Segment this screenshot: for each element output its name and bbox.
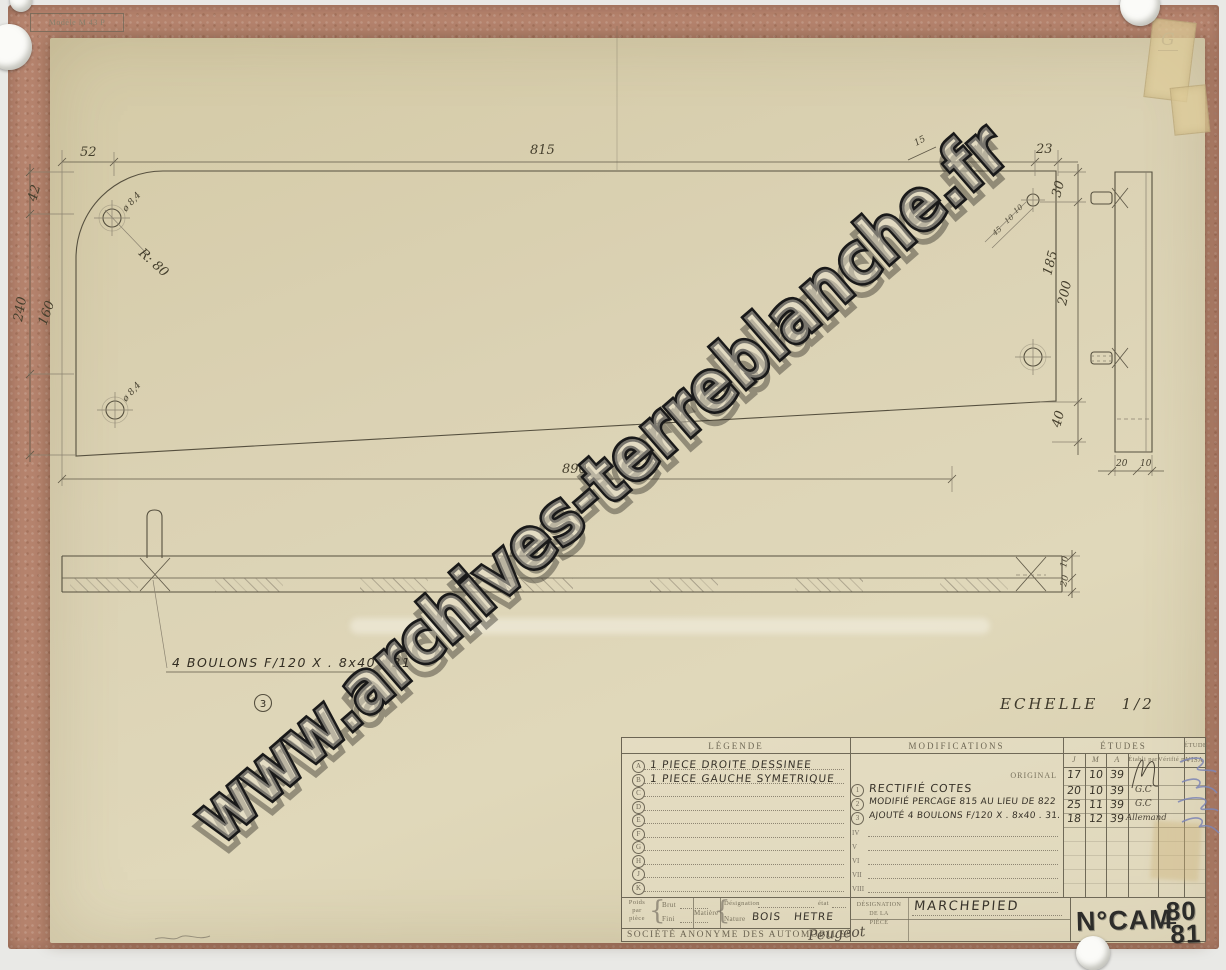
legende-letter: A xyxy=(632,760,645,773)
dim-30: 30 xyxy=(1049,179,1068,199)
col-j: J xyxy=(1063,755,1085,764)
dim-185: 185 xyxy=(1040,249,1061,277)
section-view xyxy=(62,510,1080,712)
date-j: 18 xyxy=(1062,812,1085,825)
legende-letter: C xyxy=(632,787,645,800)
date-a: 39 xyxy=(1105,784,1128,797)
dim-40: 40 xyxy=(1049,409,1068,430)
callout-3: 3 xyxy=(260,699,266,710)
dim-side-10: 10 xyxy=(1140,459,1152,469)
date-j: 20 xyxy=(1062,784,1085,797)
date-m: 12 xyxy=(1084,812,1107,825)
legende-letter: F xyxy=(632,828,645,841)
legende-letter: E xyxy=(632,814,645,827)
etudes-header: ÉTUDES xyxy=(1063,741,1184,751)
col-verifie: Vérifié par xyxy=(1158,756,1184,763)
mod-empty-row: VIII xyxy=(852,885,864,893)
dim-200: 200 xyxy=(1055,279,1075,307)
mod-empty-row: VI xyxy=(852,857,859,865)
mod-empty-row: VII xyxy=(852,871,862,879)
etabli-sig: G.C xyxy=(1135,799,1152,809)
plan-view xyxy=(76,171,1056,456)
col-m: M xyxy=(1085,755,1106,764)
mod-num: 2 xyxy=(851,798,864,811)
num-label: N°CAM xyxy=(1076,904,1174,938)
dim-815: 815 xyxy=(530,143,555,158)
poids-label: pièce xyxy=(624,915,650,922)
legende-text: 1 PIECE GAUCHE SYMETRIQUE xyxy=(649,773,835,785)
designation-sub-label: Désignation xyxy=(724,900,760,907)
date-m: 10 xyxy=(1084,768,1107,781)
date-m: 10 xyxy=(1084,784,1107,797)
matiere-value: BOIS xyxy=(751,911,781,923)
dim-52: 52 xyxy=(80,145,97,160)
brut-label: Brut xyxy=(662,901,676,909)
designation-label: DÉSIGNATION xyxy=(852,902,906,908)
legende-letter: K xyxy=(632,882,645,895)
legende-header: LÉGENDE xyxy=(622,741,850,751)
dim-side-20: 20 xyxy=(1115,459,1128,469)
date-m: 11 xyxy=(1084,798,1107,811)
matiere-value: HETRE xyxy=(793,911,834,923)
brand-logo: Peugeot xyxy=(808,924,866,944)
legende-letter: H xyxy=(632,855,645,868)
etabli-sig: G.C xyxy=(1135,785,1152,795)
paper-stain xyxy=(1150,820,1202,881)
mounting-pin xyxy=(1076,936,1110,970)
bolts-note: 4 BOULONS F/120 X . 8x40 . 31 xyxy=(172,655,411,670)
mod-text: MODIFIÉ PERCAGE 815 AU LIEU DE 822 xyxy=(869,797,1057,807)
nature-label: Nature xyxy=(724,915,745,923)
dim-15: 15 xyxy=(913,134,928,148)
mod-num: 1 xyxy=(851,784,864,797)
mod-text: AJOUTÉ 4 BOULONS F/120 X . 8x40 . 31. xyxy=(869,811,1061,821)
scale-label: ECHELLE xyxy=(1000,695,1098,713)
tape-patch xyxy=(1170,84,1211,136)
hole-dia-label: ø 8,4 xyxy=(120,380,143,404)
hole-dia-label: ø 8,4 xyxy=(120,190,143,214)
designation-label: PIÈCE xyxy=(852,920,906,926)
poids-label: par xyxy=(624,907,650,914)
modifications-header: MODIFICATIONS xyxy=(850,741,1063,751)
etat-label: état xyxy=(818,900,829,907)
dim-45: 45 xyxy=(990,224,1004,238)
dim-23: 23 xyxy=(1035,142,1053,157)
dim-890: 890 xyxy=(562,462,587,477)
dim-240: 240 xyxy=(11,296,30,324)
title-block: LÉGENDE MODIFICATIONS ÉTUDES ÉTUDE VISA … xyxy=(621,737,1206,942)
mod-num: 3 xyxy=(851,812,864,825)
legende-text: 1 PIECE DROITE DESSINEE xyxy=(649,759,812,771)
scale-value: 1/2 xyxy=(1122,695,1155,713)
radius-label: R: 80 xyxy=(135,245,172,280)
model-stamp: Modèle M 43 P xyxy=(30,13,124,32)
col-etabli: Établi par xyxy=(1128,756,1158,763)
mod-empty-row: V xyxy=(852,843,857,851)
legende-letter: D xyxy=(632,801,645,814)
date-a: 39 xyxy=(1105,768,1128,781)
visa-col-header: ÉTUDE xyxy=(1184,742,1205,749)
dimension-lines xyxy=(26,26,1086,492)
poids-label: Poids xyxy=(624,899,650,906)
designation-label: DE LA xyxy=(852,911,906,917)
side-view xyxy=(1091,172,1164,476)
legende-letter: B xyxy=(632,774,645,787)
dim-strip-20: 20 xyxy=(1059,574,1071,589)
dim-strip-10: 10 xyxy=(1059,555,1071,569)
dim-160: 160 xyxy=(36,299,59,327)
col-a: A xyxy=(1106,755,1128,764)
mod-text: RECTIFIÉ COTES xyxy=(868,782,972,795)
mod-empty-row: IV xyxy=(852,829,859,837)
date-a: 39 xyxy=(1105,798,1128,811)
legende-letter: J xyxy=(632,868,645,881)
date-j: 25 xyxy=(1062,798,1085,811)
fini-label: Fini xyxy=(662,915,675,923)
original-label: ORIGINAL xyxy=(942,771,1057,780)
dim-42: 42 xyxy=(25,183,44,204)
scale-note: ECHELLE 1/2 xyxy=(1000,695,1155,713)
legende-letter: G xyxy=(632,841,645,854)
part-designation: MARCHEPIED xyxy=(913,899,1020,914)
date-j: 17 xyxy=(1062,768,1085,781)
dim-10b: 10 xyxy=(1012,202,1025,215)
erasure-streak xyxy=(350,618,990,634)
